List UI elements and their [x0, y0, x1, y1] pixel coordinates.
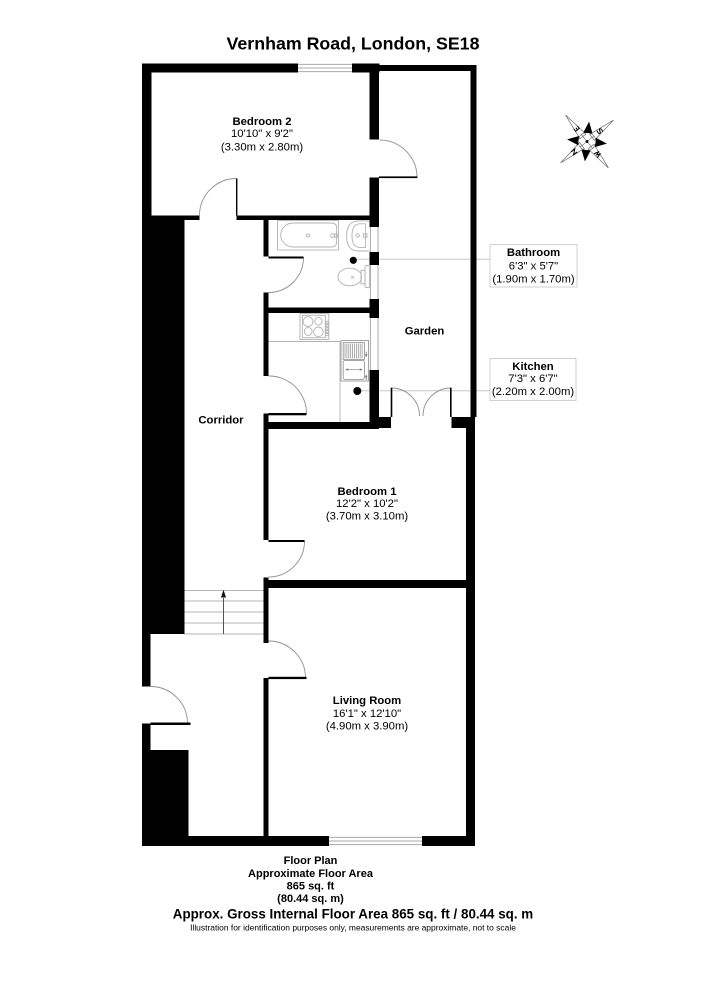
svg-text:(4.90m x 3.90m): (4.90m x 3.90m) — [326, 721, 408, 733]
svg-text:Bedroom 1: Bedroom 1 — [337, 486, 396, 498]
svg-text:10'10" x 9'2": 10'10" x 9'2" — [231, 128, 293, 140]
svg-text:12'2" x 10'2": 12'2" x 10'2" — [336, 498, 398, 510]
svg-text:(3.30m x 2.80m): (3.30m x 2.80m) — [221, 141, 303, 153]
svg-text:Illustration for identificatio: Illustration for identification purposes… — [190, 923, 516, 933]
svg-text:(1.90m x 1.70m): (1.90m x 1.70m) — [492, 273, 574, 285]
svg-text:Floor Plan: Floor Plan — [284, 855, 338, 867]
svg-text:(2.20m x 2.00m): (2.20m x 2.00m) — [492, 386, 574, 398]
svg-text:Garden: Garden — [405, 325, 445, 337]
svg-text:Vernham Road, London, SE18: Vernham Road, London, SE18 — [227, 34, 480, 54]
svg-text:6'3" x 5'7": 6'3" x 5'7" — [509, 261, 558, 273]
svg-text:7'3" x 6'7": 7'3" x 6'7" — [508, 373, 557, 385]
svg-text:Bathroom: Bathroom — [507, 247, 560, 259]
svg-text:Approximate Floor Area: Approximate Floor Area — [248, 868, 374, 880]
svg-text:865 sq. ft: 865 sq. ft — [287, 880, 335, 892]
svg-text:Kitchen: Kitchen — [512, 361, 554, 373]
svg-text:Bedroom 2: Bedroom 2 — [232, 116, 291, 128]
svg-text:(3.70m x 3.10m): (3.70m x 3.10m) — [326, 511, 408, 523]
svg-text:(80.44 sq. m): (80.44 sq. m) — [277, 893, 344, 905]
svg-text:Living Room: Living Room — [333, 695, 401, 707]
svg-text:Corridor: Corridor — [198, 415, 244, 427]
svg-text:Approx. Gross Internal Floor A: Approx. Gross Internal Floor Area 865 sq… — [173, 907, 534, 922]
svg-text:16'1" x 12'10": 16'1" x 12'10" — [333, 708, 401, 720]
